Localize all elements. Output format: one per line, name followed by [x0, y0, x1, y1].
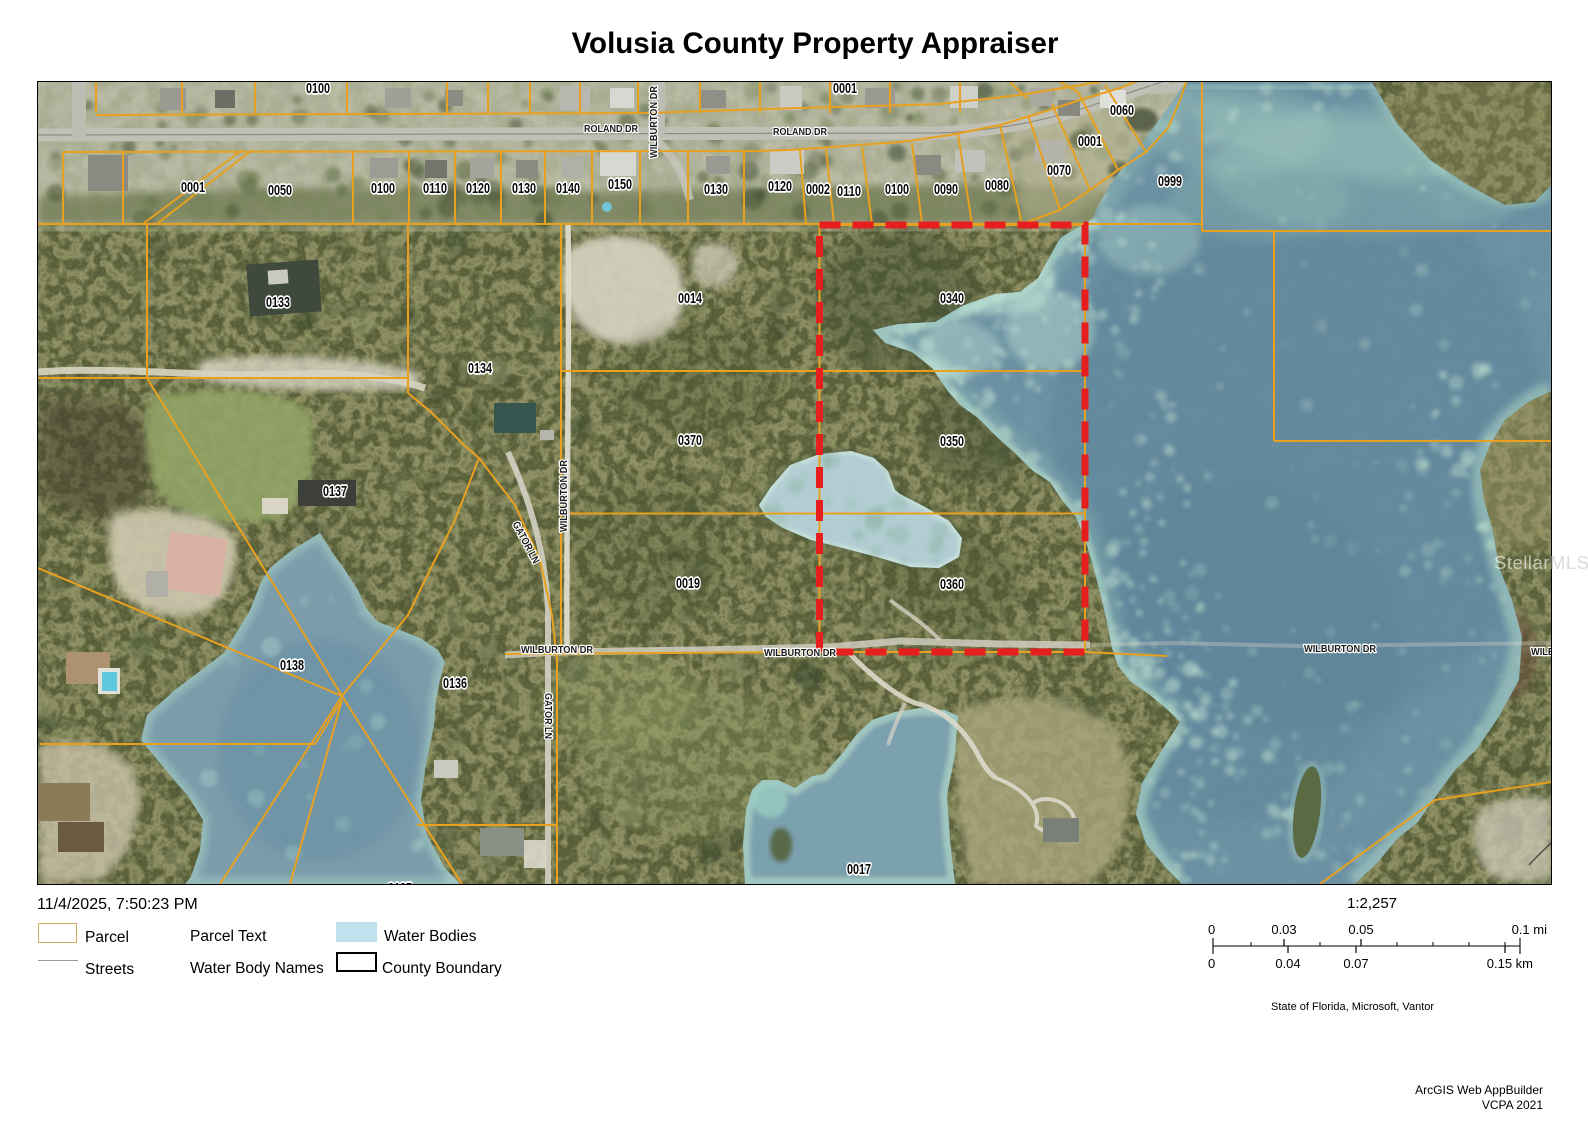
- svg-text:0050: 0050: [268, 183, 292, 199]
- svg-text:0070: 0070: [1047, 163, 1071, 179]
- svg-text:ROLAND DR: ROLAND DR: [584, 123, 638, 135]
- svg-text:0340: 0340: [940, 291, 964, 307]
- svg-text:0100: 0100: [306, 82, 330, 97]
- svg-text:WILBURTON DR: WILBURTON DR: [764, 647, 836, 659]
- svg-text:0135: 0135: [388, 881, 412, 884]
- svg-text:0090: 0090: [934, 182, 958, 198]
- svg-text:0.04: 0.04: [1275, 956, 1300, 971]
- svg-text:0133: 0133: [266, 295, 290, 311]
- svg-text:0138: 0138: [280, 658, 304, 674]
- svg-text:0100: 0100: [371, 181, 395, 197]
- svg-text:0080: 0080: [985, 178, 1009, 194]
- svg-text:0137: 0137: [323, 484, 347, 500]
- svg-text:0: 0: [1208, 922, 1215, 937]
- svg-text:0370: 0370: [678, 433, 702, 449]
- svg-text:0014: 0014: [678, 291, 702, 307]
- svg-text:0136: 0136: [443, 676, 467, 692]
- svg-text:WILBURTON DR: WILBURTON DR: [648, 86, 660, 158]
- svg-text:0.07: 0.07: [1343, 956, 1368, 971]
- svg-text:0100: 0100: [885, 182, 909, 198]
- svg-text:0350: 0350: [940, 434, 964, 450]
- svg-text:0001: 0001: [1078, 134, 1102, 150]
- svg-text:0150: 0150: [608, 177, 632, 193]
- svg-text:0110: 0110: [837, 184, 861, 200]
- svg-text:0.15 km: 0.15 km: [1487, 956, 1533, 971]
- svg-text:0017: 0017: [847, 862, 871, 878]
- svg-text:WILBURTON DR: WILBURTON DR: [1531, 646, 1551, 658]
- svg-text:0360: 0360: [940, 577, 964, 593]
- svg-text:0019: 0019: [676, 576, 700, 592]
- svg-text:0120: 0120: [466, 181, 490, 197]
- svg-text:0134: 0134: [468, 361, 492, 377]
- svg-text:WILBURTON DR: WILBURTON DR: [521, 644, 593, 656]
- svg-text:0999: 0999: [1158, 174, 1182, 190]
- svg-text:GATOR LN: GATOR LN: [542, 693, 554, 739]
- svg-text:0060: 0060: [1110, 103, 1134, 119]
- svg-text:0002: 0002: [806, 182, 830, 198]
- svg-text:0130: 0130: [704, 182, 728, 198]
- svg-text:0140: 0140: [556, 181, 580, 197]
- svg-text:0120: 0120: [768, 179, 792, 195]
- svg-text:0001: 0001: [181, 180, 205, 196]
- svg-text:0.1 mi: 0.1 mi: [1512, 922, 1548, 937]
- svg-text:0: 0: [1208, 956, 1215, 971]
- svg-text:WILBURTON DR: WILBURTON DR: [1304, 643, 1376, 655]
- svg-text:0130: 0130: [512, 181, 536, 197]
- svg-text:WILBURTON DR: WILBURTON DR: [558, 460, 570, 532]
- svg-text:0001: 0001: [833, 82, 857, 97]
- svg-text:0.05: 0.05: [1348, 922, 1373, 937]
- svg-text:ROLAND DR: ROLAND DR: [773, 126, 827, 138]
- svg-text:0110: 0110: [423, 181, 447, 197]
- svg-text:0.03: 0.03: [1271, 922, 1296, 937]
